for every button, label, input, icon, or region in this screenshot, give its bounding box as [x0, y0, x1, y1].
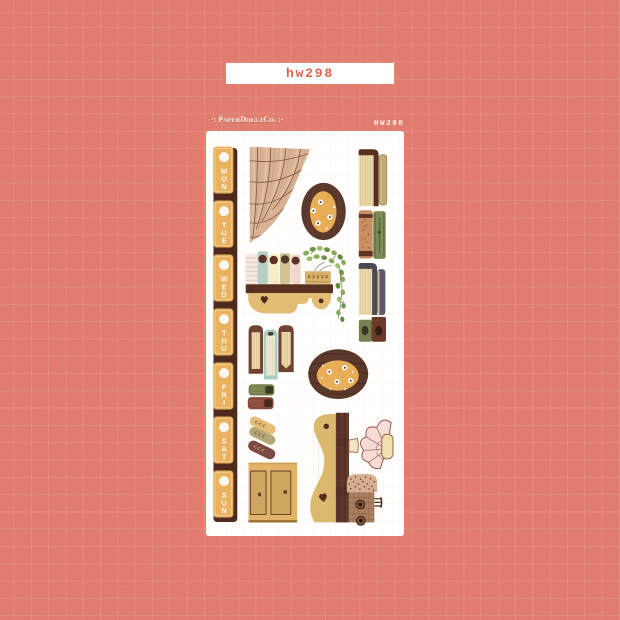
svg-text:N: N	[221, 506, 226, 515]
svg-text:U: U	[221, 344, 226, 353]
svg-text:D: D	[221, 290, 227, 299]
svg-text:I: I	[223, 398, 225, 407]
svg-text:N: N	[221, 182, 226, 191]
svg-text:T: T	[221, 452, 226, 461]
svg-text:E: E	[221, 236, 226, 245]
